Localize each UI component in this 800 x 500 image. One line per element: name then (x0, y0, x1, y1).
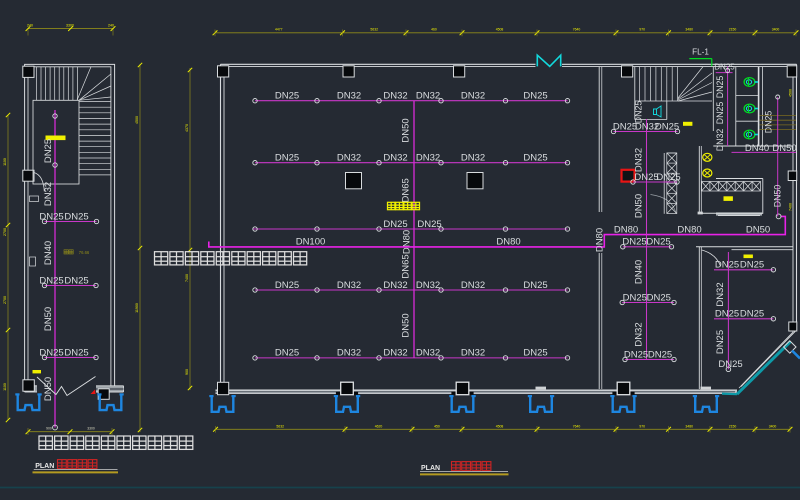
svg-text:970: 970 (639, 28, 645, 32)
svg-text:7400: 7400 (185, 274, 189, 282)
svg-text:DN32: DN32 (416, 153, 440, 164)
svg-text:DN25: DN25 (718, 359, 742, 370)
svg-text:DN25: DN25 (64, 347, 88, 358)
svg-text:5632: 5632 (370, 28, 378, 32)
svg-text:DN25: DN25 (275, 348, 299, 359)
svg-text:DN65: DN65 (401, 178, 412, 202)
svg-text:7640: 7640 (573, 424, 581, 428)
svg-text:DN65: DN65 (401, 254, 412, 278)
svg-text:DN25: DN25 (275, 153, 299, 164)
svg-text:DN32: DN32 (715, 129, 725, 152)
svg-text:4500: 4500 (135, 116, 139, 124)
svg-text:DN25: DN25 (417, 219, 441, 230)
svg-text:DN25: DN25 (714, 62, 735, 71)
svg-text:DN25: DN25 (39, 211, 63, 222)
svg-text:DN80: DN80 (402, 230, 413, 254)
svg-text:DN32: DN32 (383, 91, 407, 102)
svg-text:DN25: DN25 (740, 260, 764, 271)
svg-text:450: 450 (434, 424, 440, 428)
svg-text:970: 970 (639, 424, 645, 428)
svg-text:460: 460 (431, 28, 437, 32)
svg-text:DN32: DN32 (634, 322, 645, 346)
svg-text:2700: 2700 (3, 296, 7, 304)
svg-text:3480: 3480 (685, 28, 693, 32)
svg-text:DN40: DN40 (745, 143, 769, 154)
svg-text:DN50: DN50 (43, 307, 54, 331)
svg-text:DN32: DN32 (634, 148, 645, 172)
svg-text:4370: 4370 (185, 124, 189, 132)
svg-text:DN25: DN25 (622, 237, 646, 248)
svg-text:240: 240 (27, 23, 33, 27)
svg-text:3300: 3300 (66, 23, 74, 27)
svg-text:DN50: DN50 (43, 377, 54, 401)
svg-text:3300: 3300 (87, 427, 95, 431)
svg-text:3400: 3400 (772, 28, 780, 32)
svg-text:4500: 4500 (789, 89, 793, 97)
svg-text:DN40: DN40 (634, 260, 645, 284)
svg-text:DN32: DN32 (337, 91, 361, 102)
svg-text:DN25: DN25 (646, 237, 670, 248)
svg-text:DN25: DN25 (715, 102, 725, 125)
svg-text:7640: 7640 (573, 28, 581, 32)
svg-text:DN50: DN50 (401, 118, 412, 142)
svg-text:900: 900 (46, 427, 52, 431)
svg-text:5632: 5632 (276, 424, 284, 428)
svg-text:DN25: DN25 (523, 348, 547, 359)
svg-text:3480: 3480 (685, 424, 693, 428)
svg-text:DN25: DN25 (39, 347, 63, 358)
svg-text:DN50: DN50 (401, 313, 412, 337)
svg-text:240: 240 (108, 23, 114, 27)
svg-text:DN80: DN80 (614, 224, 638, 235)
svg-text:DN25: DN25 (715, 260, 739, 271)
svg-text:DN32: DN32 (383, 153, 407, 164)
svg-text:DN32: DN32 (383, 348, 407, 359)
svg-text:DN25: DN25 (623, 292, 647, 303)
svg-text:DN25: DN25 (715, 309, 739, 320)
svg-text:DN25: DN25 (634, 172, 658, 183)
svg-text:DN50: DN50 (772, 143, 796, 154)
svg-text:DN50: DN50 (634, 194, 645, 218)
svg-text:DN100: DN100 (296, 237, 326, 248)
svg-text:DN32: DN32 (715, 282, 726, 306)
svg-text:DN25: DN25 (740, 309, 764, 320)
svg-text:DN32: DN32 (337, 153, 361, 164)
svg-text:DN32: DN32 (416, 280, 440, 291)
svg-text:DN25: DN25 (613, 121, 637, 132)
svg-text:4477: 4477 (275, 28, 283, 32)
svg-text:DN25: DN25 (275, 91, 299, 102)
svg-text:DN32: DN32 (461, 153, 485, 164)
svg-text:DN32: DN32 (461, 348, 485, 359)
svg-text:DN32: DN32 (337, 280, 361, 291)
svg-text:DN50: DN50 (746, 224, 770, 235)
svg-text:1100: 1100 (3, 158, 7, 166)
svg-text:DN32: DN32 (416, 348, 440, 359)
svg-text:DN25: DN25 (383, 219, 407, 230)
svg-text:DN32: DN32 (337, 348, 361, 359)
svg-text:DN80: DN80 (677, 224, 701, 235)
svg-text:DN25: DN25 (648, 349, 672, 360)
svg-text:DN25: DN25 (633, 101, 643, 124)
svg-text:DN25: DN25 (715, 76, 725, 99)
svg-text:11900: 11900 (135, 303, 139, 313)
svg-text:DN25: DN25 (624, 349, 648, 360)
svg-text:DN32: DN32 (43, 182, 54, 206)
svg-text:4508: 4508 (496, 424, 504, 428)
svg-text:FL-1: FL-1 (692, 47, 709, 56)
svg-text:76.66: 76.66 (79, 250, 90, 255)
svg-text:DN25: DN25 (715, 330, 726, 354)
svg-text:PLAN: PLAN (421, 465, 440, 472)
svg-text:DN40: DN40 (43, 241, 54, 265)
svg-text:1100: 1100 (3, 383, 7, 391)
svg-text:DN25: DN25 (523, 153, 547, 164)
svg-text:2700: 2700 (3, 228, 7, 236)
svg-text:DN25: DN25 (275, 280, 299, 291)
svg-text:2150: 2150 (729, 28, 737, 32)
svg-text:DN25: DN25 (655, 121, 679, 132)
svg-text:PLAN: PLAN (35, 463, 54, 470)
svg-text:DN25: DN25 (523, 91, 547, 102)
svg-text:DN25: DN25 (39, 275, 63, 286)
svg-text:DN80: DN80 (496, 237, 520, 248)
svg-text:DN25: DN25 (647, 292, 671, 303)
svg-text:DN32: DN32 (416, 91, 440, 102)
svg-text:3400: 3400 (769, 424, 777, 428)
svg-text:DN50: DN50 (773, 185, 783, 208)
svg-text:DN25: DN25 (523, 280, 547, 291)
svg-text:900: 900 (185, 369, 189, 375)
svg-text:DN32: DN32 (461, 91, 485, 102)
svg-text:4620: 4620 (375, 424, 383, 428)
svg-text:DN25: DN25 (43, 139, 54, 163)
svg-text:DN80: DN80 (594, 228, 605, 252)
svg-text:2150: 2150 (729, 424, 737, 428)
svg-text:DN32: DN32 (461, 280, 485, 291)
svg-text:DN25: DN25 (764, 111, 774, 134)
svg-text:4508: 4508 (496, 28, 504, 32)
svg-text:DN25: DN25 (64, 211, 88, 222)
svg-text:DN25: DN25 (64, 275, 88, 286)
svg-text:DN32: DN32 (383, 280, 407, 291)
svg-text:DN25: DN25 (656, 172, 680, 183)
svg-text:7400: 7400 (789, 203, 793, 211)
